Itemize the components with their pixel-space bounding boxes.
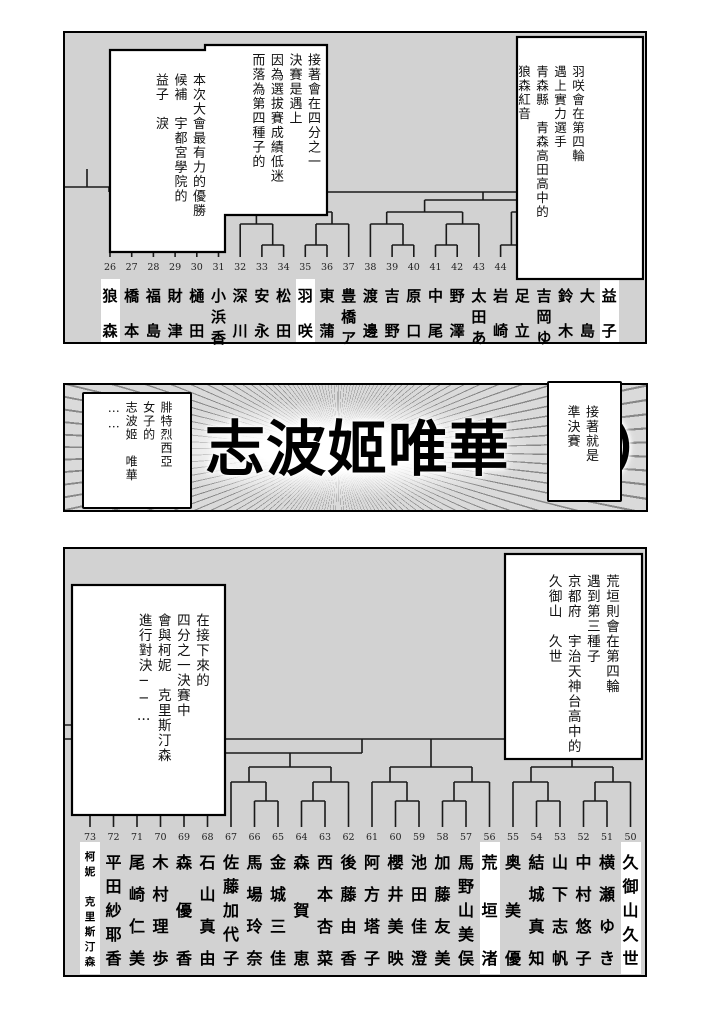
- vertical-text-column: 青森縣 青森高田高中的: [534, 65, 548, 219]
- vertical-text-column: 遇到第三種子: [584, 574, 599, 754]
- vertical-text-column: 候補 宇都宮學院的: [171, 73, 186, 218]
- speech-bubble-right-text: 接著就是準決賽: [564, 405, 597, 463]
- vertical-text-column: ……: [106, 401, 119, 482]
- vertical-text-column: 狼森紅音: [516, 65, 530, 219]
- vertical-text-column: 腓特烈西亞: [159, 401, 172, 482]
- vertical-text-column: 會與柯妮 克里斯汀森: [155, 613, 170, 763]
- vertical-text-column: 志波姬 唯華: [124, 401, 137, 482]
- vertical-text-column: 因為選拔賽成績低迷: [267, 53, 282, 184]
- speech-bubble-main-text: 接著會在四分之一決賽是遇上因為選拔賽成績低迷而落為第四種子的: [249, 53, 319, 184]
- vertical-text-column: 遇上實力選手: [552, 65, 566, 219]
- vertical-text-column: 接著會在四分之一: [304, 53, 319, 184]
- speech-bubble-main-text-2: 本次大會最有力的優勝候補 宇都宮學院的益子 淚: [152, 73, 204, 218]
- vertical-text-column: 荒垣則會在第四輪: [603, 574, 618, 754]
- vertical-text-column: 而落為第四種子的: [249, 53, 264, 184]
- manga-page: 接著會在四分之一決賽是遇上因為選拔賽成績低迷而落為第四種子的 本次大會最有力的優…: [0, 0, 720, 1024]
- vertical-text-column: 接著就是: [582, 405, 597, 463]
- vertical-text-column: 在接下來的: [193, 613, 208, 763]
- panel-bottom-bracket: 在接下來的四分之一決賽中會與柯妮 克里斯汀森進行對決──… 荒垣則會在第四輪遇到…: [63, 547, 647, 977]
- vertical-text-column: 四分之一決賽中: [174, 613, 189, 763]
- vertical-text-column: 京都府 宇治天神台高中的: [565, 574, 580, 754]
- vertical-text-column: 羽咲會在第四輪: [570, 65, 584, 219]
- speech-bubble-right-text: 荒垣則會在第四輪遇到第三種子京都府 宇治天神台高中的久御山 久世: [546, 574, 618, 754]
- panel-top-bracket: 接著會在四分之一決賽是遇上因為選拔賽成績低迷而落為第四種子的 本次大會最有力的優…: [63, 31, 647, 344]
- vertical-text-column: 久御山 久世: [546, 574, 561, 754]
- vertical-text-column: 進行對決──…: [136, 613, 151, 763]
- speech-bubble-left-text: 在接下來的四分之一決賽中會與柯妮 克里斯汀森進行對決──…: [136, 613, 208, 763]
- vertical-text-column: 準決賽: [564, 405, 579, 463]
- speech-bubble-side-text: 羽咲會在第四輪遇上實力選手青森縣 青森高田高中的狼森紅音: [516, 65, 584, 219]
- vertical-text-column: 本次大會最有力的優勝: [189, 73, 204, 218]
- panel-title-reveal: 志波姬唯華（ ） 腓特烈西亞女子的志波姬 唯華…… 接著就是準決賽: [63, 383, 648, 512]
- vertical-text-column: 益子 淚: [152, 73, 167, 218]
- speech-bubble-left-text: 腓特烈西亞女子的志波姬 唯華……: [106, 401, 172, 482]
- big-title: 志波姬唯華（: [205, 401, 571, 488]
- vertical-text-column: 女子的: [141, 401, 154, 482]
- vertical-text-column: 決賽是遇上: [286, 53, 301, 184]
